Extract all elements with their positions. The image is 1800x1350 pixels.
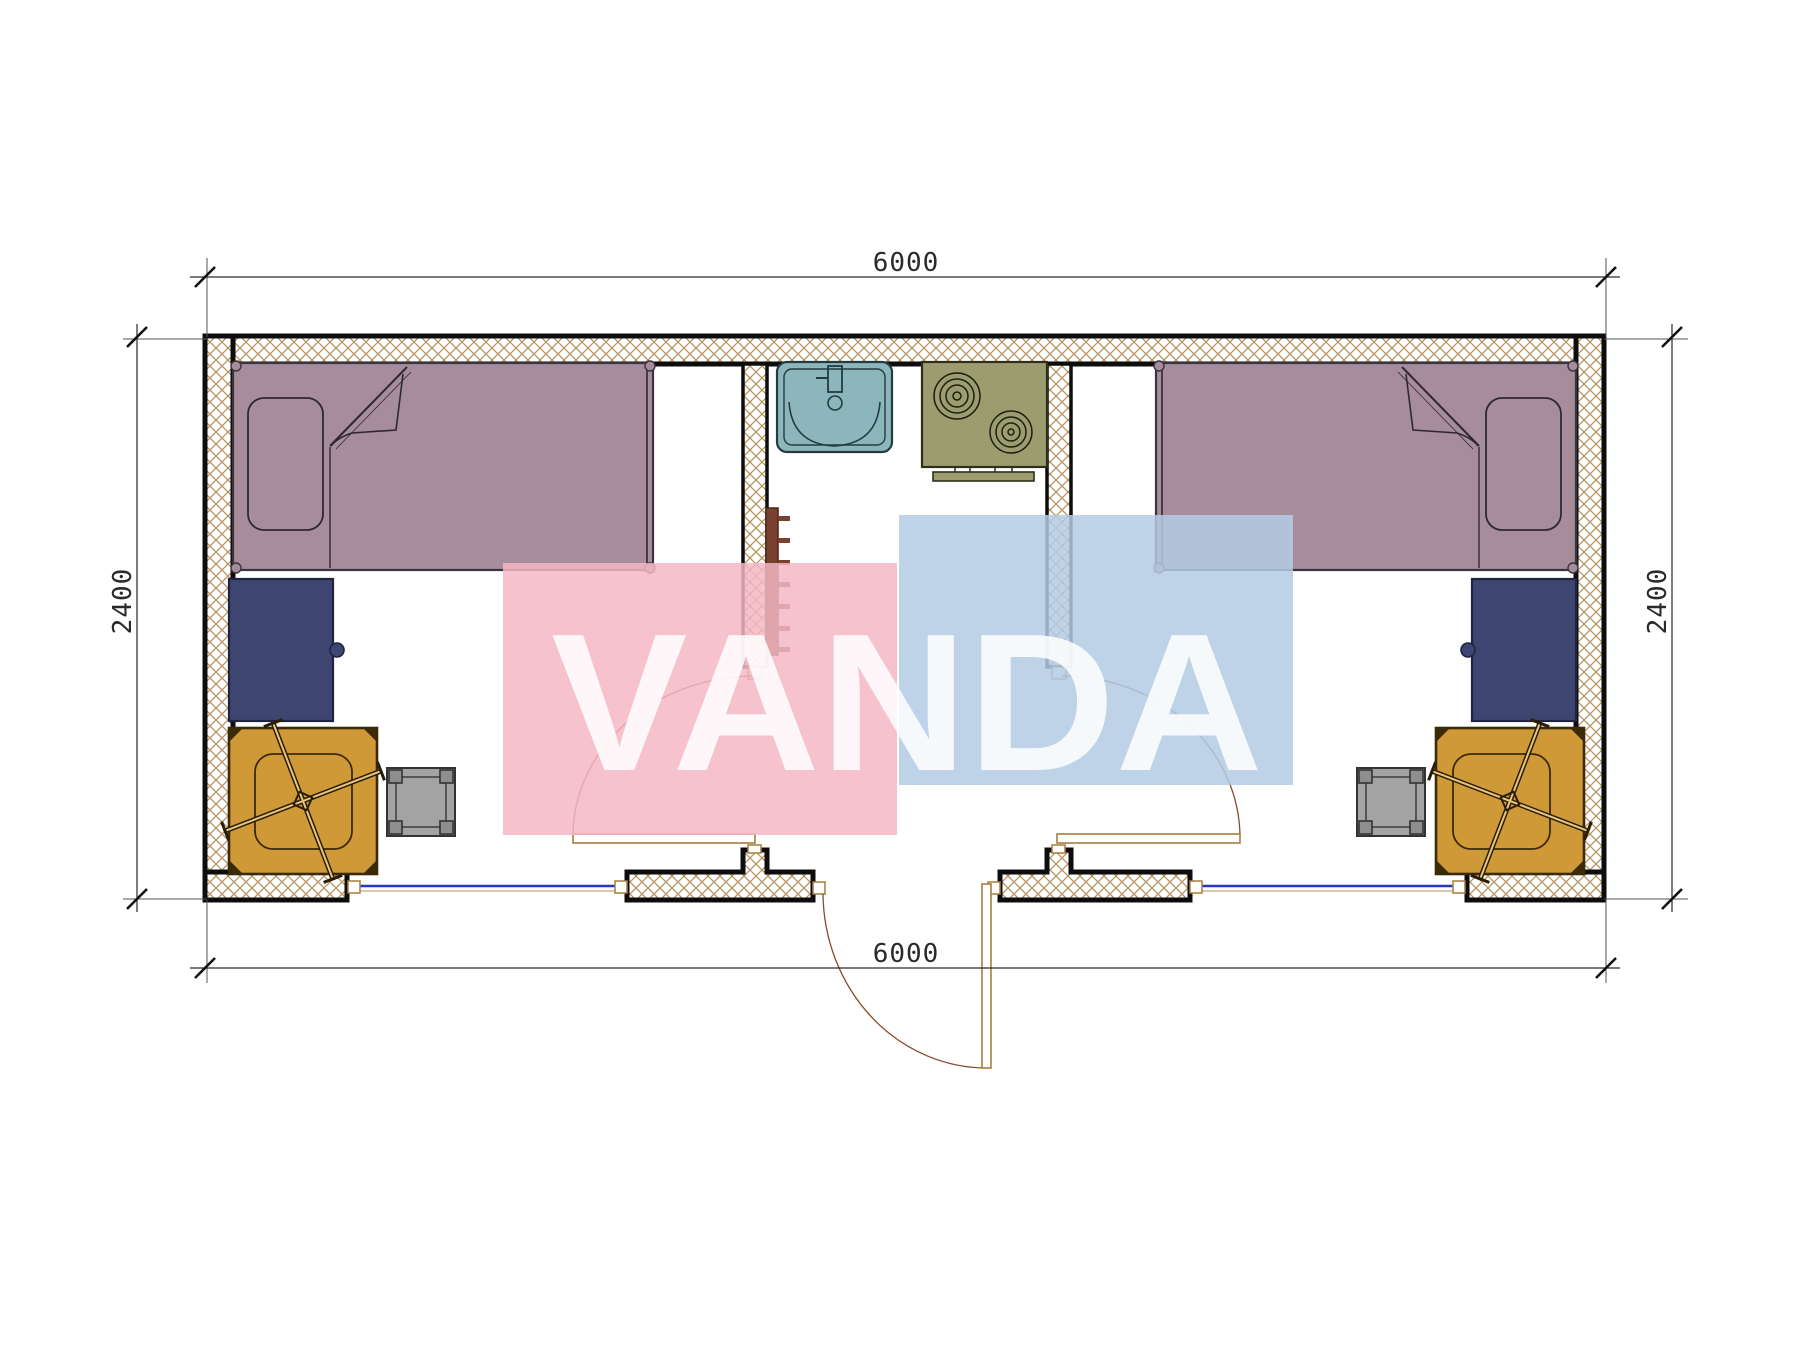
door-leaf-entrance — [982, 884, 991, 1068]
desk-right-knob — [1461, 643, 1475, 657]
desk-right — [1461, 579, 1576, 721]
wall-bottom-segment-left — [627, 850, 813, 900]
dim-label-right: 2400 — [1643, 568, 1673, 635]
jamb — [813, 882, 825, 894]
stove-base — [933, 467, 1034, 481]
jamb — [615, 881, 627, 893]
floor-plan-drawing: 6000 6000 2400 2400 VANDA — [0, 0, 1800, 1350]
dim-label-bottom: 6000 — [873, 939, 940, 969]
desk-left-body — [229, 579, 333, 721]
jamb-door-right — [1052, 845, 1065, 853]
windows — [360, 886, 1453, 891]
floor-plan-page: 6000 6000 2400 2400 VANDA — [0, 0, 1800, 1350]
jamb — [348, 881, 360, 893]
jamb — [1453, 881, 1465, 893]
desk-left — [229, 579, 344, 721]
wall-bottom-right — [1467, 872, 1604, 900]
watermark: VANDA — [503, 515, 1293, 835]
desk-right-body — [1472, 579, 1576, 721]
door-leaf-left-room — [573, 834, 755, 843]
wall-bottom-segment-right — [1000, 850, 1190, 900]
bed-left-frame — [233, 363, 653, 570]
wall-top — [205, 336, 1604, 364]
sink — [777, 362, 892, 452]
stool-right — [1357, 768, 1425, 836]
wall-bottom-left — [205, 872, 347, 900]
desk-left-knob — [330, 643, 344, 657]
dim-label-left: 2400 — [108, 568, 138, 635]
sink-counter — [777, 362, 892, 452]
stove-body — [922, 362, 1047, 467]
dim-label-top: 6000 — [873, 248, 940, 278]
jamb — [1190, 881, 1202, 893]
bed-left — [231, 361, 655, 573]
door-leaf-right-room — [1057, 834, 1240, 843]
chair-left — [216, 714, 390, 888]
stove — [922, 362, 1047, 481]
door-swing-entrance — [823, 894, 987, 1068]
watermark-text: VANDA — [551, 593, 1263, 812]
stool-left — [387, 768, 455, 836]
chair-right — [1423, 714, 1597, 888]
jamb-door-left — [748, 845, 761, 853]
